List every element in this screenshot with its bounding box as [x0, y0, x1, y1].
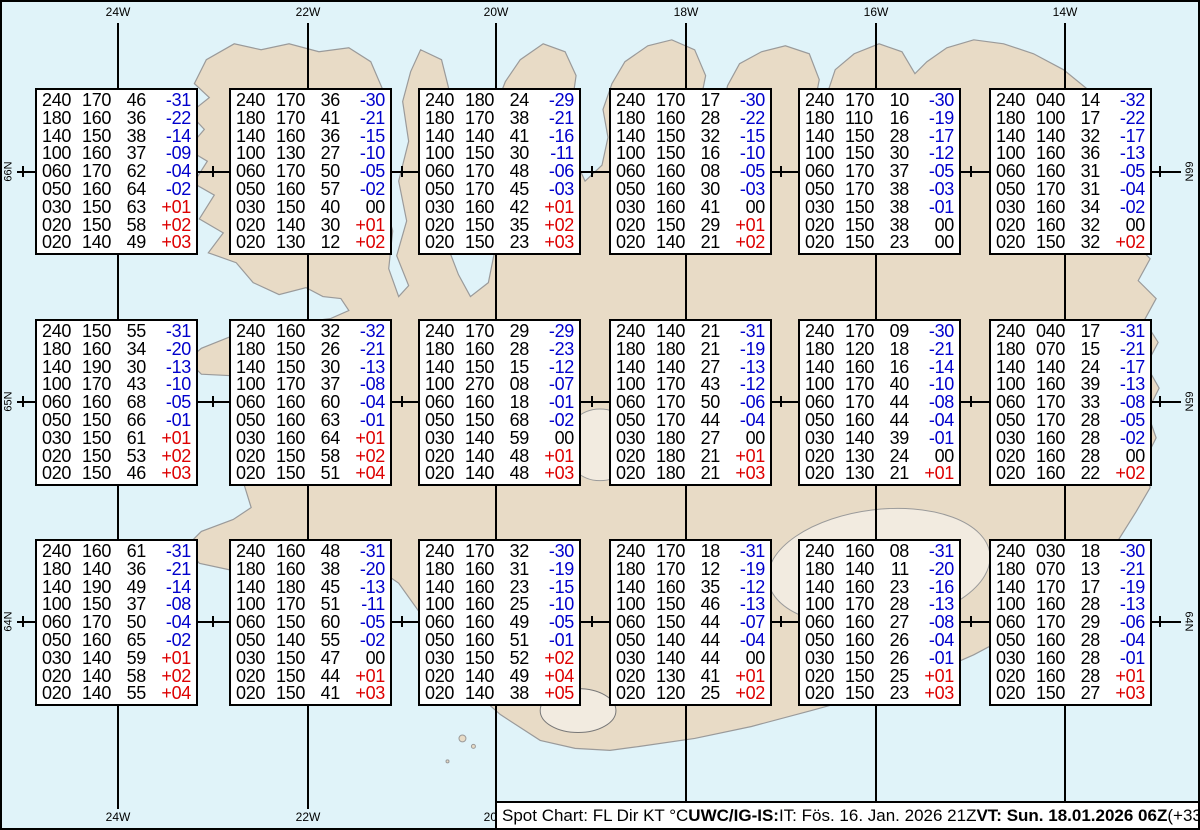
latitude-label-left: 65N: [3, 387, 16, 417]
footer-segment: (+33 h): [1167, 806, 1200, 826]
footer-segment: VT: Sun. 18.01.2026 06Z: [976, 806, 1167, 826]
spot-chart-screen: 24017046-3118016036-2214015038-141001603…: [0, 0, 1200, 830]
edge-labels-layer: 24W24W22W22W20W20W18W18W16W16W14W14W66N6…: [2, 2, 1198, 828]
latitude-label-left: 64N: [3, 607, 16, 637]
latitude-label-right: 64N: [1182, 607, 1195, 637]
longitude-label-top: 16W: [864, 5, 889, 19]
footer-segment: IT: Fös. 16. Jan. 2026 21Z: [779, 806, 977, 826]
footer-bar: Spot Chart: FL Dir KT °C UWC/IG-IS: IT: …: [495, 801, 1200, 828]
longitude-label-top: 20W: [484, 5, 509, 19]
latitude-label-right: 66N: [1182, 157, 1195, 187]
longitude-label-top: 18W: [674, 5, 699, 19]
longitude-label-top: 24W: [106, 5, 131, 19]
longitude-label-top: 22W: [296, 5, 321, 19]
longitude-label-top: 14W: [1053, 5, 1078, 19]
longitude-label-bottom: 22W: [296, 810, 321, 824]
longitude-label-bottom: 24W: [106, 810, 131, 824]
footer-segment: Spot Chart: FL Dir KT °C: [502, 806, 688, 826]
footer-segment: UWC/IG-IS:: [688, 806, 779, 826]
latitude-label-right: 65N: [1182, 387, 1195, 417]
latitude-label-left: 66N: [3, 157, 16, 187]
